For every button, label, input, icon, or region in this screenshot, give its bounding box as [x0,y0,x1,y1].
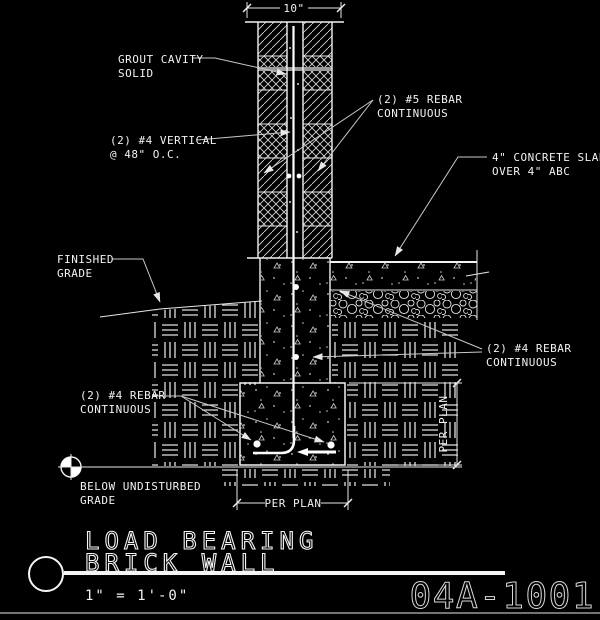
cad-drawing-sheet: 10" PER PLAN PER PLAN GROUT CAVITY SOLID [0,0,600,620]
detail-scale: 1" = 1'-0" [85,588,189,604]
detail-drawing: 10" PER PLAN PER PLAN GROUT CAVITY SOLID [0,0,600,620]
footing-depth-dim-text: PER PLAN [437,396,450,453]
wall-width-dim-text: 10" [283,2,304,15]
callout-vert4-2: @ 48" O.C. [110,148,181,161]
callout-grout-cavity-1: GROUT CAVITY [118,53,203,66]
title-block: LOAD BEARING BRICK WALL 1" = 1'-0" 04A-1… [0,527,600,617]
callout-finished-grade-1: FINISHED [57,253,114,266]
concrete-stem-wall [247,258,332,383]
rebar5-dot-left [287,174,292,179]
dimension-wall-width: 10" [243,2,345,18]
callout-grout-cavity-2: SOLID [118,67,154,80]
callout-below-grade-2: GRADE [80,494,116,507]
concrete-footing [240,383,345,465]
callout-rebar5-2: CONTINUOUS [377,107,448,120]
callout-below-grade-1: BELOW UNDISTURBED [80,480,201,493]
callout-slab-1: 4" CONCRETE SLAB [492,151,600,164]
callout-rebar4-left-1: (2) #4 REBAR [80,389,165,402]
stem-rebar-dot-upper [293,284,299,290]
callout-finished-grade-2: GRADE [57,267,93,280]
sheet-number: 04A-1001 [410,576,595,617]
callout-vert4-1: (2) #4 VERTICAL [110,134,217,147]
stem-rebar-dot-lower [293,354,299,360]
footing-rebar-dot-right [327,441,334,448]
rebar5-dot-right [297,174,302,179]
earth-hatch-below-footing [222,469,390,486]
footing-rebar-dot-left [253,440,260,447]
callout-rebar5-1: (2) #5 REBAR [377,93,462,106]
callout-rebar4-right-2: CONTINUOUS [486,356,557,369]
footing-width-dim-text: PER PLAN [265,497,322,510]
detail-bubble [29,557,63,591]
leader-slab [395,157,487,256]
leader-finished-grade [112,259,160,302]
callout-slab-2: OVER 4" ABC [492,165,570,178]
callout-rebar4-left-2: CONTINUOUS [80,403,151,416]
callout-rebar4-right-1: (2) #4 REBAR [486,342,571,355]
detail-title-line2: BRICK WALL [85,549,280,577]
gravel-base [331,291,477,318]
